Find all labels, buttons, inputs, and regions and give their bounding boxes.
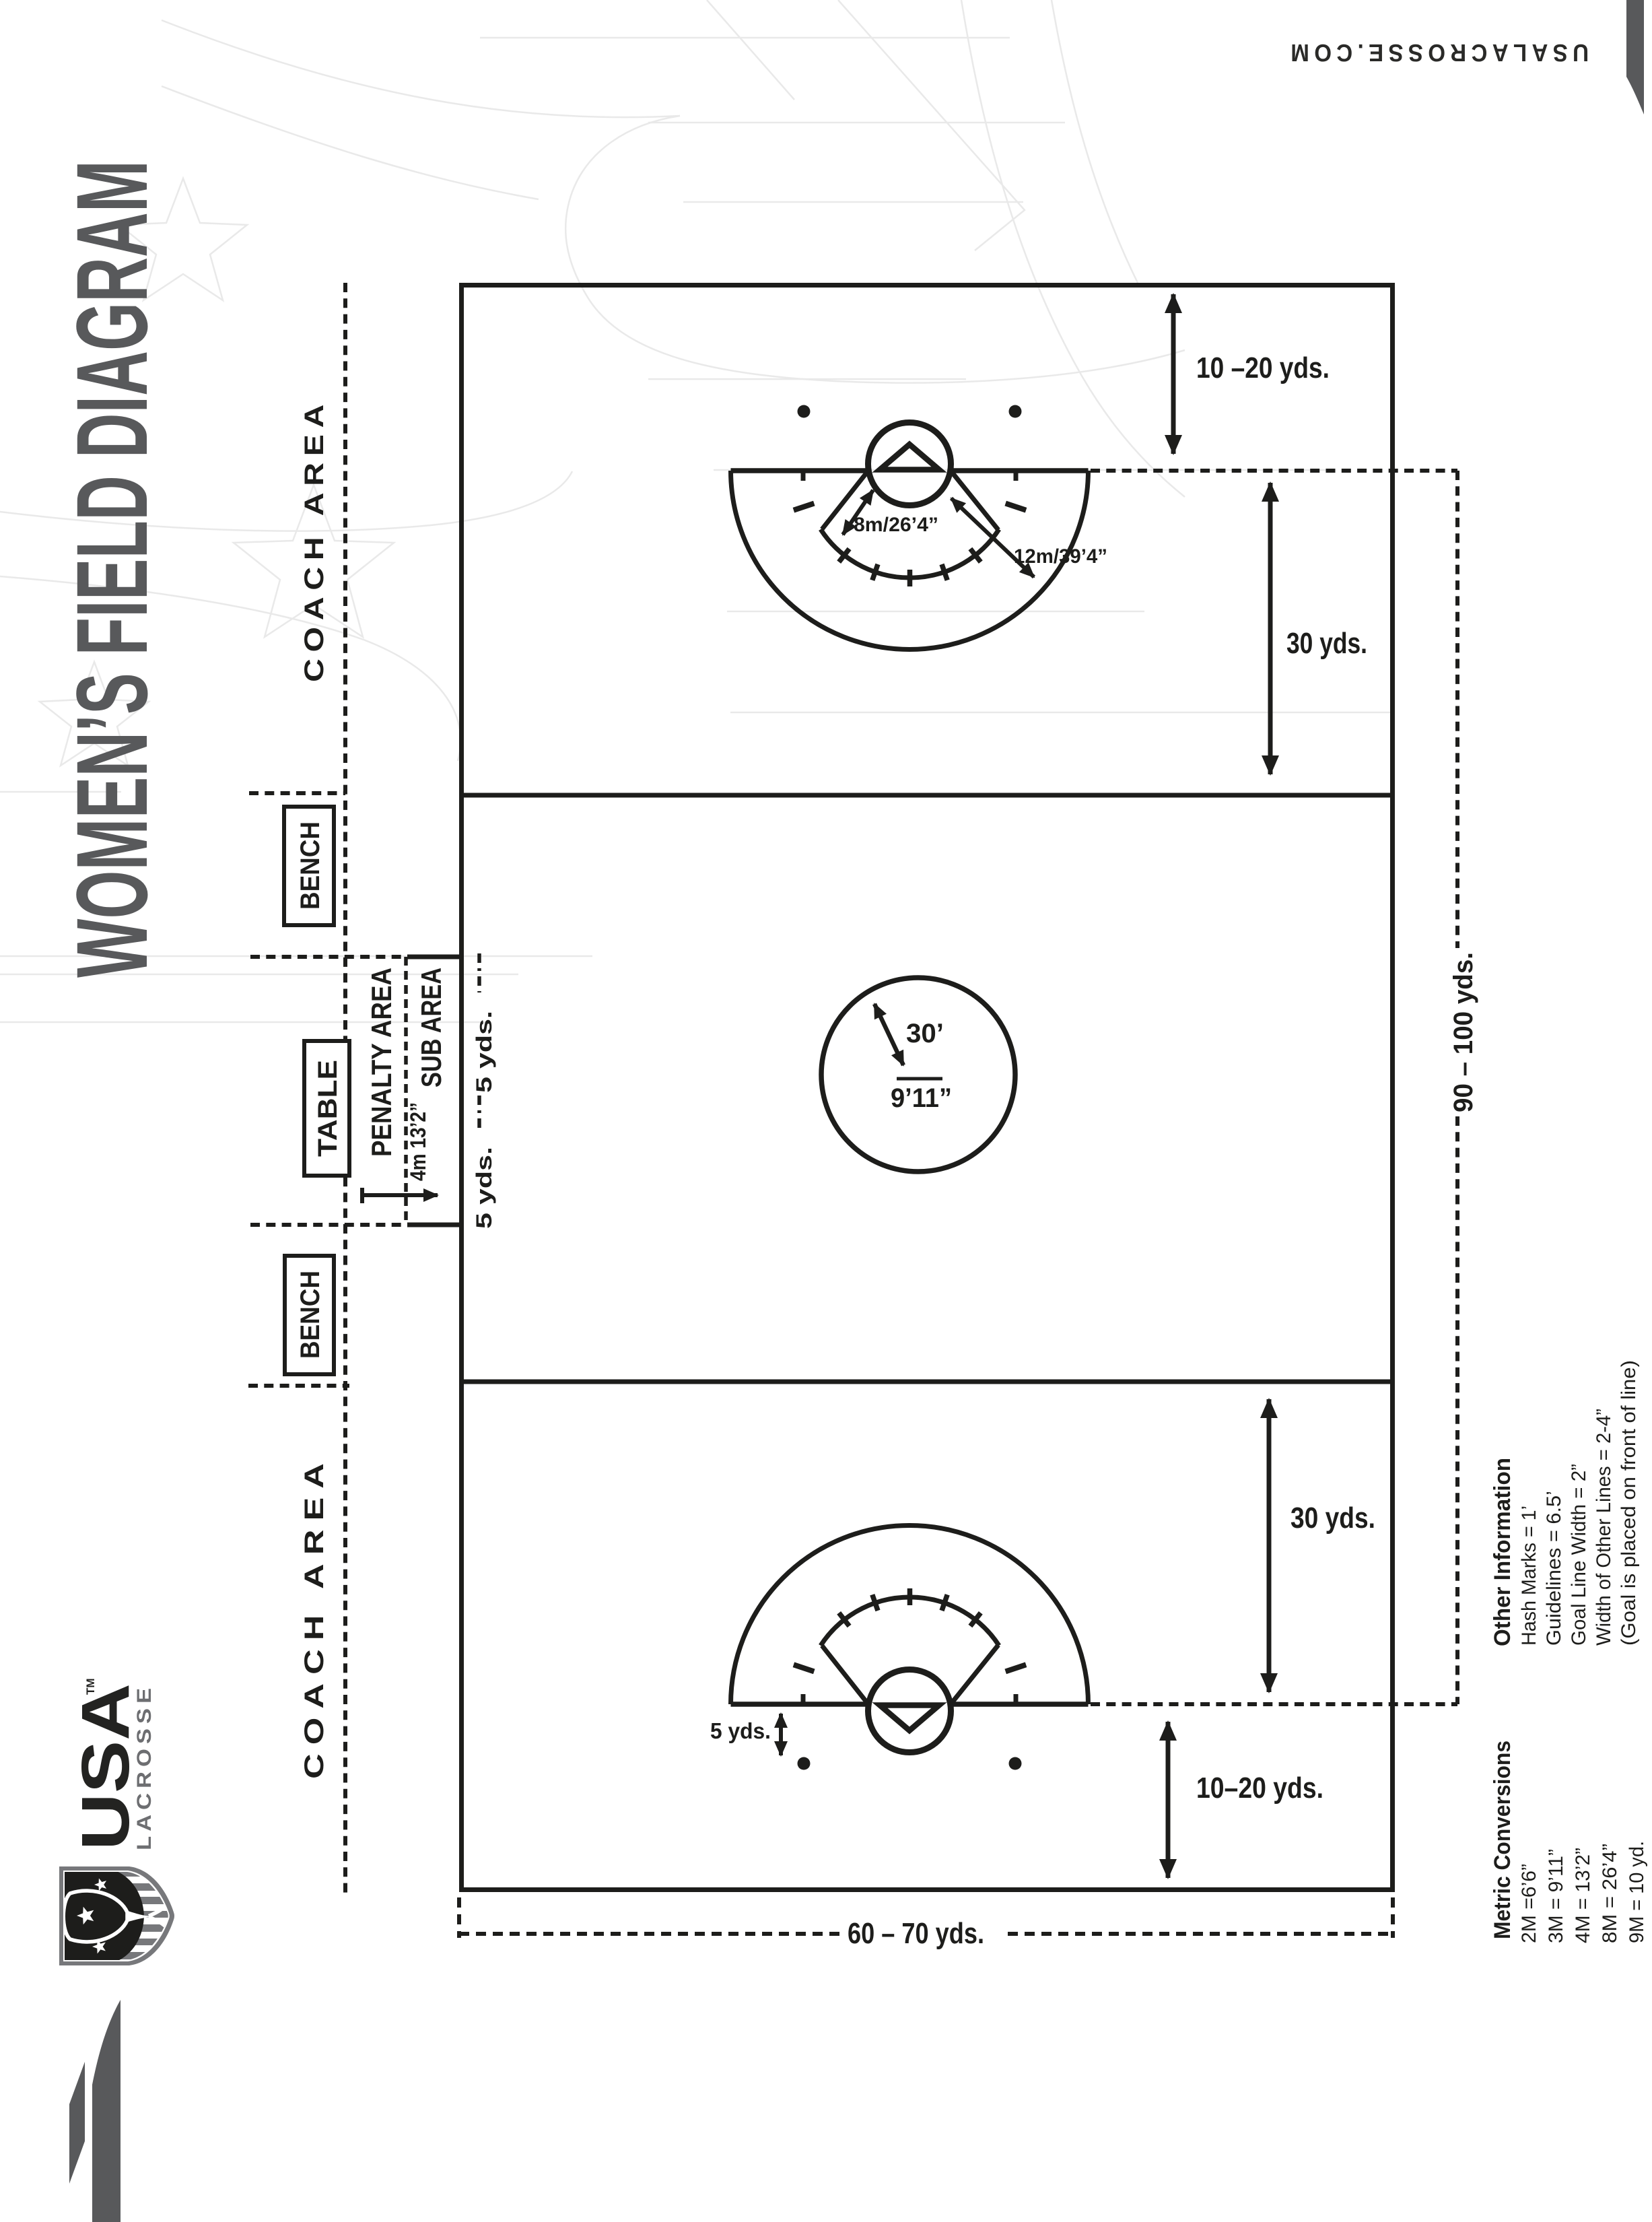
svg-text:30’: 30’ bbox=[906, 1019, 944, 1048]
svg-text:5 yds.: 5 yds. bbox=[710, 1718, 771, 1743]
svg-text:(Goal is placed on front of li: (Goal is placed on front of line) bbox=[1618, 1360, 1640, 1646]
svg-text:12m/39’4”: 12m/39’4” bbox=[1014, 545, 1107, 568]
svg-text:9M = 10 yd.: 9M = 10 yd. bbox=[1626, 1841, 1648, 1943]
svg-text:Other Information: Other Information bbox=[1490, 1458, 1515, 1646]
svg-text:5 yds.: 5 yds. bbox=[472, 1011, 496, 1093]
svg-text:3M = 9’11”: 3M = 9’11” bbox=[1545, 1849, 1567, 1943]
svg-text:USALACROSSE.COM: USALACROSSE.COM bbox=[1286, 39, 1589, 67]
svg-text:COACH AREA: COACH AREA bbox=[300, 398, 329, 682]
svg-text:30 yds.: 30 yds. bbox=[1290, 1502, 1375, 1535]
svg-text:2M =6’6”: 2M =6’6” bbox=[1518, 1864, 1540, 1943]
svg-text:5 yds.: 5 yds. bbox=[472, 1147, 496, 1229]
svg-text:4m 13’2”: 4m 13’2” bbox=[406, 1102, 430, 1181]
svg-text:Width of Other Lines = 2-4”: Width of Other Lines = 2-4” bbox=[1593, 1409, 1615, 1646]
svg-text:LACROSSE: LACROSSE bbox=[133, 1683, 156, 1850]
svg-text:Hash Marks = 1’: Hash Marks = 1’ bbox=[1518, 1506, 1540, 1646]
svg-text:4M = 13’2”: 4M = 13’2” bbox=[1572, 1848, 1594, 1943]
svg-text:PENALTY AREA: PENALTY AREA bbox=[366, 968, 397, 1157]
svg-text:COACH AREA: COACH AREA bbox=[300, 1454, 329, 1779]
svg-text:10–20 yds.: 10–20 yds. bbox=[1196, 1772, 1323, 1805]
svg-text:TABLE: TABLE bbox=[313, 1060, 343, 1157]
svg-text:BENCH: BENCH bbox=[296, 821, 325, 910]
svg-text:BENCH: BENCH bbox=[296, 1271, 325, 1359]
svg-text:30 yds.: 30 yds. bbox=[1286, 627, 1367, 660]
svg-text:8M = 26’4”: 8M = 26’4” bbox=[1599, 1844, 1621, 1943]
svg-text:9’11”: 9’11” bbox=[891, 1083, 952, 1113]
svg-text:WOMEN’S FIELD DIAGRAM: WOMEN’S FIELD DIAGRAM bbox=[55, 160, 168, 978]
svg-text:TM: TM bbox=[84, 1678, 97, 1695]
svg-text:60 – 70 yds.: 60 – 70 yds. bbox=[848, 1917, 984, 1950]
svg-text:Metric Conversions: Metric Conversions bbox=[1490, 1741, 1515, 1939]
svg-text:90 – 100 yds.: 90 – 100 yds. bbox=[1449, 952, 1478, 1112]
svg-text:USA: USA bbox=[68, 1683, 143, 1850]
svg-text:Goal Line Width = 2”: Goal Line Width = 2” bbox=[1568, 1464, 1590, 1646]
svg-text:Guidelines = 6.5’: Guidelines = 6.5’ bbox=[1543, 1491, 1565, 1646]
svg-text:10 –20 yds.: 10 –20 yds. bbox=[1196, 351, 1330, 384]
svg-text:SUB AREA: SUB AREA bbox=[415, 968, 447, 1087]
svg-text:8m/26’4”: 8m/26’4” bbox=[854, 514, 938, 536]
